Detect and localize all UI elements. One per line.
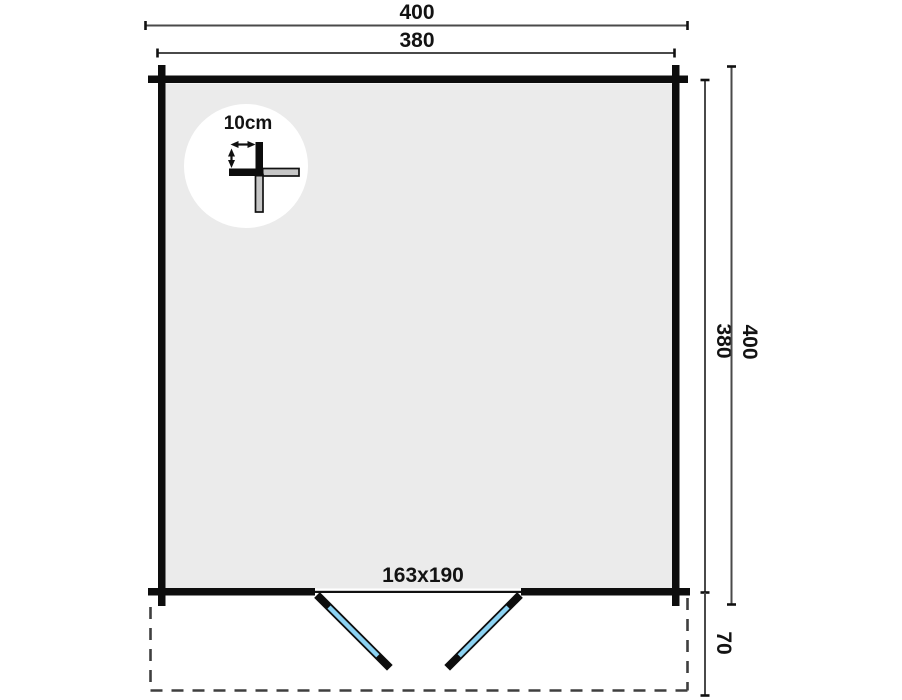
dim-top-overall-label: 400 (399, 1, 434, 24)
wall-bottom-left (148, 588, 315, 596)
dim-right-walls: 380 (701, 80, 736, 593)
detail-log-arm-left (229, 169, 264, 177)
dim-top-walls: 380 (157, 29, 675, 58)
dim-top-walls-label: 380 (399, 29, 434, 52)
door-leaf-left-glass (327, 605, 379, 657)
floor-plan-drawing: 10cm 163x190 4 (0, 0, 902, 700)
wall-top (148, 76, 688, 84)
dim-terrace-depth-label: 70 (712, 631, 735, 654)
dim-right-overall-label: 400 (738, 324, 761, 359)
floor-plan-canvas: 10cm 163x190 4 (0, 0, 902, 700)
dim-right-overall: 400 (727, 67, 761, 605)
dim-top-overall: 400 (145, 1, 688, 30)
door-leaf-right-glass (458, 605, 510, 657)
door-leaf-left (314, 592, 392, 670)
door-threshold (315, 591, 521, 593)
wall-thickness-label: 10cm (224, 113, 273, 134)
terrace-dashed-outline (151, 598, 688, 691)
detail-log-arm-right (262, 169, 300, 177)
wall-detail-bubble: 10cm (184, 104, 308, 228)
dim-terrace-depth: 70 (701, 593, 736, 696)
wall-left (158, 65, 166, 606)
door-size-label: 163x190 (382, 564, 464, 587)
wall-right (672, 65, 680, 606)
detail-log-arm-bottom (256, 175, 264, 213)
wall-bottom-right (521, 588, 690, 596)
door-leaf-right (444, 592, 522, 670)
